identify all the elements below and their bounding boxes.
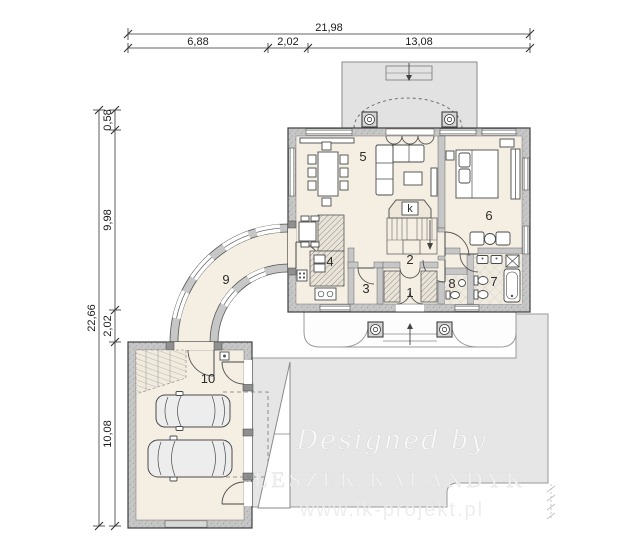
watermark-url: www.lk-projekt.pl	[299, 499, 484, 521]
car-mirror	[170, 477, 177, 481]
dresser	[500, 139, 514, 147]
garage-door-opening-2	[244, 436, 252, 473]
car-1	[156, 392, 230, 431]
watermark-author: LESZEK KALANDYK	[254, 467, 526, 492]
floor-plan-svg: 5 6 4 2 3 1 8 7 9 10 k 21,98 6,88 2,02 1…	[0, 0, 638, 556]
porch-column-right	[437, 322, 452, 337]
nightstand	[446, 151, 454, 160]
pillow	[459, 153, 470, 167]
car-mirror	[170, 436, 177, 440]
dim-house-depth: 9,98	[102, 209, 114, 230]
toilet	[451, 292, 460, 299]
car-mirror	[176, 427, 183, 431]
entry-porch	[304, 312, 516, 347]
room-label-4: 4	[326, 254, 333, 269]
watermark-designed-by: Designed by	[295, 425, 487, 456]
corridor-opening	[174, 342, 214, 350]
dim-corridor-width: 2,02	[277, 36, 298, 48]
chair	[496, 232, 510, 245]
coffee-table	[404, 172, 422, 185]
dim-garage-depth: 10,08	[102, 420, 114, 448]
window	[289, 148, 295, 196]
room-label-9: 9	[222, 272, 229, 287]
kitchen-table	[299, 222, 316, 241]
window	[523, 158, 529, 190]
corridor-opening	[288, 228, 296, 268]
room-label-10: 10	[201, 371, 215, 386]
pillow	[459, 169, 470, 183]
room-label-7: 7	[490, 274, 497, 289]
dim-seg-058: 0,58	[102, 109, 114, 130]
dim-total-depth: 22,66	[86, 304, 98, 332]
window	[482, 129, 516, 135]
small-sink	[459, 280, 466, 287]
window	[455, 305, 479, 311]
room-label-1: 1	[406, 285, 413, 300]
dim-garage-width: 6,88	[187, 36, 208, 48]
bidet	[474, 290, 488, 299]
kitchen-sink	[314, 264, 325, 272]
dim-corridor-depth: 2,02	[102, 315, 114, 336]
terrace-column-left	[362, 112, 377, 127]
floor-plan-canvas: 5 6 4 2 3 1 8 7 9 10 k 21,98 6,88 2,02 1…	[0, 0, 638, 556]
dim-total-width: 21,98	[315, 22, 343, 34]
dim-house-width: 13,08	[405, 36, 433, 48]
fireplace-label: k	[407, 203, 413, 215]
room-label-6: 6	[485, 208, 492, 223]
washer	[506, 255, 519, 267]
room-label-8: 8	[448, 276, 455, 291]
room-label-3: 3	[362, 281, 369, 296]
toilet	[474, 276, 488, 285]
room-label-2: 2	[406, 252, 413, 267]
porch-column-left	[368, 322, 383, 337]
car-mirror	[176, 392, 183, 396]
kitchen-counter	[318, 215, 344, 251]
terrace-column-right	[442, 112, 457, 127]
stove	[315, 288, 336, 300]
kitchen-sink	[314, 255, 325, 263]
chair	[470, 232, 484, 245]
dining-table	[318, 152, 338, 196]
utility-box	[220, 352, 229, 360]
room-label-5: 5	[359, 149, 366, 164]
round-table	[485, 234, 496, 245]
upper-terrace	[342, 62, 477, 128]
wardrobe	[511, 149, 520, 199]
hob-box	[297, 270, 307, 281]
terrace-steps	[386, 63, 432, 81]
window	[306, 129, 352, 135]
garage-door-opening-1	[244, 391, 252, 429]
window	[320, 305, 350, 311]
car-2	[148, 436, 232, 481]
garage-window	[165, 521, 207, 527]
window	[440, 129, 476, 135]
window	[523, 226, 529, 254]
tv-cabinet	[431, 168, 437, 196]
bathtub	[504, 269, 520, 302]
